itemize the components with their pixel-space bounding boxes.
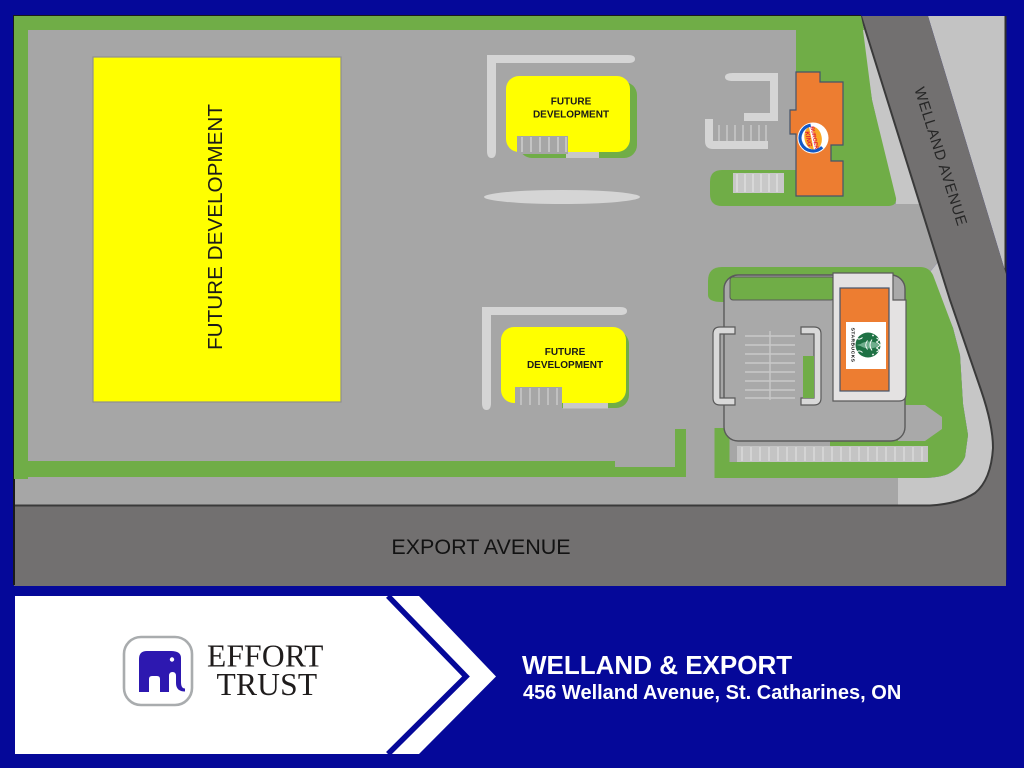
svg-text:DEVELOPMENT: DEVELOPMENT <box>533 110 609 121</box>
svg-text:456 Welland Avenue, St. Cathar: 456 Welland Avenue, St. Catharines, ON <box>523 682 901 704</box>
svg-text:EXPORT AVENUE: EXPORT AVENUE <box>391 535 570 559</box>
svg-text:FUTURE: FUTURE <box>551 97 592 108</box>
svg-text:WELLAND & EXPORT: WELLAND & EXPORT <box>522 650 792 680</box>
svg-text:FUTURE DEVELOPMENT: FUTURE DEVELOPMENT <box>204 104 227 350</box>
svg-text:STARBUCKS: STARBUCKS <box>850 328 856 363</box>
svg-text:DEVELOPMENT: DEVELOPMENT <box>527 360 603 371</box>
svg-text:TRUST: TRUST <box>217 667 318 702</box>
svg-text:FUTURE: FUTURE <box>545 347 586 358</box>
